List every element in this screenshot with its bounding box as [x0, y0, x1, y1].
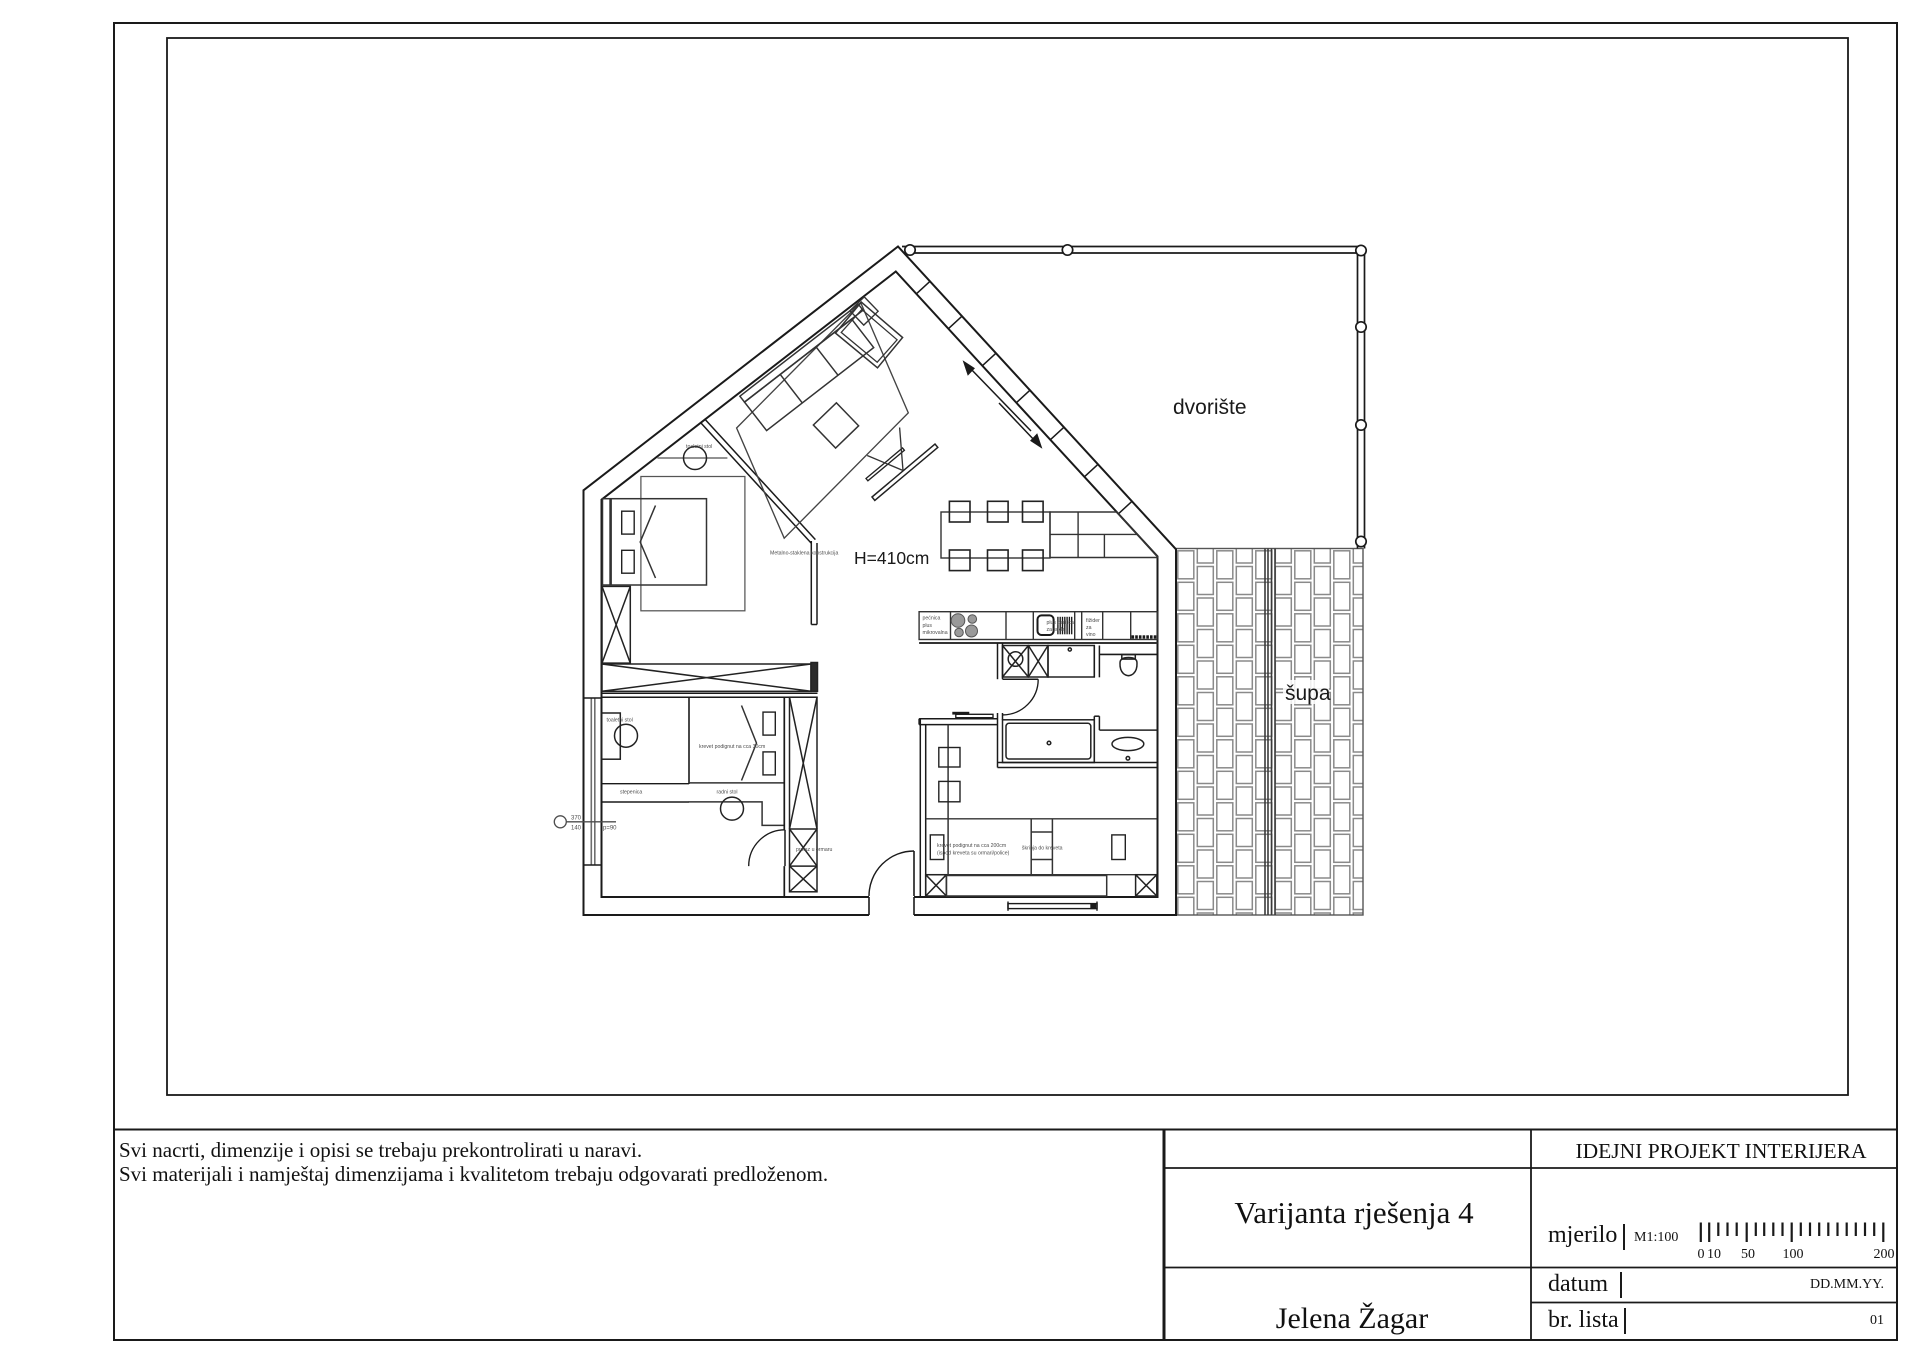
svg-text:krevet podignut na cca 30cm: krevet podignut na cca 30cm [699, 744, 765, 750]
svg-text:(ispod kreveta su ormari/polic: (ispod kreveta su ormari/police) [937, 851, 1010, 857]
svg-text:br. lista: br. lista [1548, 1307, 1619, 1333]
svg-text:Metalno-staklena konstrukcija: Metalno-staklena konstrukcija [770, 551, 838, 557]
svg-text:plus: plus [923, 623, 933, 629]
svg-text:200: 200 [1874, 1247, 1895, 1262]
svg-text:50: 50 [1741, 1247, 1755, 1262]
svg-text:vino: vino [1086, 632, 1096, 638]
svg-text:prolaz u ormaru: prolaz u ormaru [796, 847, 832, 853]
svg-text:M1:100: M1:100 [1634, 1230, 1678, 1245]
svg-text:plus perilica: plus perilica [1047, 620, 1075, 626]
svg-text:DD.MM.YY.: DD.MM.YY. [1810, 1277, 1884, 1292]
svg-text:140: 140 [571, 826, 582, 832]
svg-text:370: 370 [571, 816, 582, 822]
svg-text:Svi materijali i namještaj dim: Svi materijali i namještaj dimenzijama i… [119, 1162, 828, 1186]
svg-text:šupa: šupa [1285, 682, 1331, 705]
svg-text:radni stol: radni stol [717, 790, 738, 796]
svg-text:IDEJNI PROJEKT INTERIJERA: IDEJNI PROJEKT INTERIJERA [1575, 1139, 1867, 1163]
svg-text:za: za [1086, 625, 1092, 631]
svg-text:100: 100 [1783, 1247, 1804, 1262]
svg-text:H=410cm: H=410cm [854, 548, 929, 568]
svg-text:toaletni stol: toaletni stol [607, 718, 633, 724]
svg-text:p=90: p=90 [603, 826, 617, 832]
svg-text:krevet podignut na cca 200cm: krevet podignut na cca 200cm [937, 843, 1006, 849]
svg-text:toaletni stol: toaletni stol [686, 444, 712, 450]
svg-text:mjerilo: mjerilo [1548, 1222, 1617, 1248]
svg-text:dvorište: dvorište [1173, 396, 1247, 419]
svg-text:za suđe: za suđe [1047, 627, 1065, 633]
svg-text:Jelena Žagar: Jelena Žagar [1276, 1302, 1428, 1335]
svg-text:fižider: fižider [1086, 618, 1100, 624]
svg-text:Svi nacrti, dimenzije i opisi: Svi nacrti, dimenzije i opisi se trebaju… [119, 1138, 642, 1162]
svg-text:stepenica: stepenica [620, 790, 642, 796]
svg-text:0: 0 [1698, 1247, 1705, 1262]
svg-text:10: 10 [1707, 1247, 1721, 1262]
svg-text:01: 01 [1870, 1313, 1884, 1328]
svg-text:mikrovalna: mikrovalna [923, 630, 948, 636]
svg-text:pećnica: pećnica [923, 616, 941, 622]
svg-text:Varijanta rješenja 4: Varijanta rješenja 4 [1234, 1195, 1474, 1230]
svg-text:škrinja do kreveta: škrinja do kreveta [1022, 846, 1063, 852]
svg-text:datum: datum [1548, 1271, 1608, 1297]
